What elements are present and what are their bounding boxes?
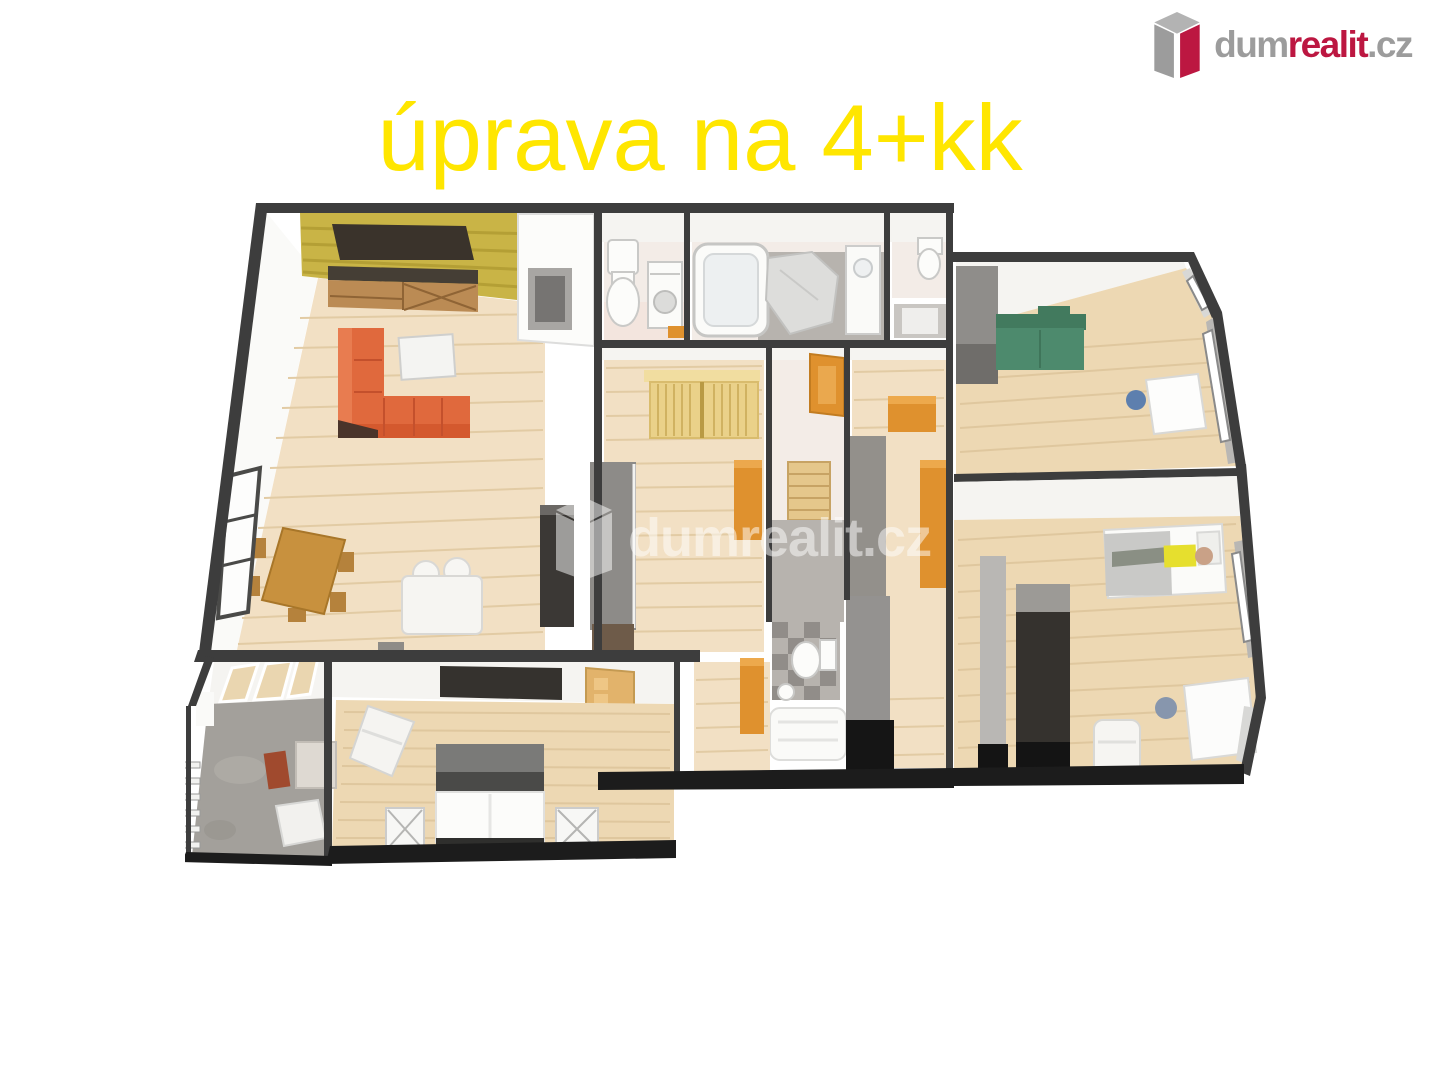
brand-logo: dumrealit.cz (1154, 12, 1412, 78)
balcony (185, 692, 336, 856)
coffee-table (399, 334, 456, 380)
sofa-green (996, 306, 1086, 370)
balcony-wall (324, 656, 332, 856)
balcony-outer-rail (186, 706, 191, 856)
rw-top-wall (952, 252, 1188, 262)
desk (1146, 374, 1206, 434)
person-torso (1164, 544, 1197, 567)
toilet (607, 240, 639, 326)
toilet-bowl (792, 642, 820, 678)
bed-with-person (1104, 524, 1226, 598)
bathtub-inner (704, 254, 758, 326)
washing-machine (648, 262, 682, 328)
balcony-lounge-chair (276, 800, 326, 846)
bathroom-row (602, 213, 948, 340)
brand-realit: realit (1288, 24, 1367, 65)
toilet-small (918, 238, 942, 279)
charcoal-wardrobe (540, 515, 574, 627)
dark-wardrobe-top (1016, 584, 1070, 614)
living-right-wall (594, 207, 602, 652)
toilet-tank (820, 640, 836, 670)
vent (378, 642, 404, 651)
bedroom2-back-wall (954, 476, 1240, 520)
double-bed (436, 744, 544, 845)
hall-gray-floor (772, 520, 844, 622)
page-title: úprava na 4+kk (377, 84, 1022, 192)
niche-door (902, 308, 938, 334)
living-room (202, 207, 594, 652)
brand-dum: dum (1214, 24, 1288, 65)
orange-cabinet (734, 468, 762, 540)
brand-logo-text: dumrealit.cz (1214, 24, 1412, 66)
wall-end-slab (846, 596, 890, 724)
living-bottom-wall (194, 650, 700, 662)
floor-mottle (204, 820, 236, 840)
futon (770, 708, 846, 760)
white-table (402, 576, 482, 634)
bath-wall (884, 207, 890, 347)
dark-wardrobe (1016, 612, 1070, 744)
orange-tall-cabinet (920, 468, 950, 588)
bed-headboard (436, 744, 544, 774)
door-sill (668, 326, 686, 338)
bath-back-wall (602, 213, 948, 242)
floor-mottle (214, 756, 266, 784)
person-head (1195, 547, 1213, 565)
desk-chair (1155, 697, 1177, 719)
middle-top-band (602, 348, 948, 360)
brand-cz: .cz (1367, 24, 1412, 65)
mid-wall (844, 346, 850, 600)
fireplace-screen-inner (535, 276, 565, 322)
dining-chair (330, 592, 346, 612)
door-panel (594, 678, 608, 690)
wall-end-base (846, 720, 894, 774)
orange-cabinet (740, 666, 764, 734)
wardrobe-lid (644, 370, 760, 382)
door-panel (818, 366, 836, 404)
desk-chair (1126, 390, 1146, 410)
small-sink (778, 684, 794, 700)
mid-wall (766, 346, 772, 622)
bed-dark-band (436, 772, 544, 794)
step-shelf (788, 462, 830, 520)
bath-wall (684, 207, 690, 347)
tv-panel (332, 224, 474, 260)
wall-end-slab (980, 556, 1006, 770)
orange-bench (888, 404, 936, 432)
right-wing (954, 262, 1258, 778)
gray-wardrobe-front (956, 344, 998, 384)
top-wall (256, 203, 954, 213)
floor-plan-3d (185, 195, 1275, 885)
sink (854, 259, 872, 277)
wall-tv-panel (440, 666, 562, 700)
mid-right-wall (946, 203, 953, 781)
gray-wardrobe (956, 266, 998, 346)
page: úprava na 4+kk dumrealit.cz (0, 0, 1440, 1080)
bath-bottom-wall (598, 340, 950, 348)
bedroom-right-wall (674, 658, 680, 776)
dumrealit-building-icon (1154, 12, 1200, 78)
